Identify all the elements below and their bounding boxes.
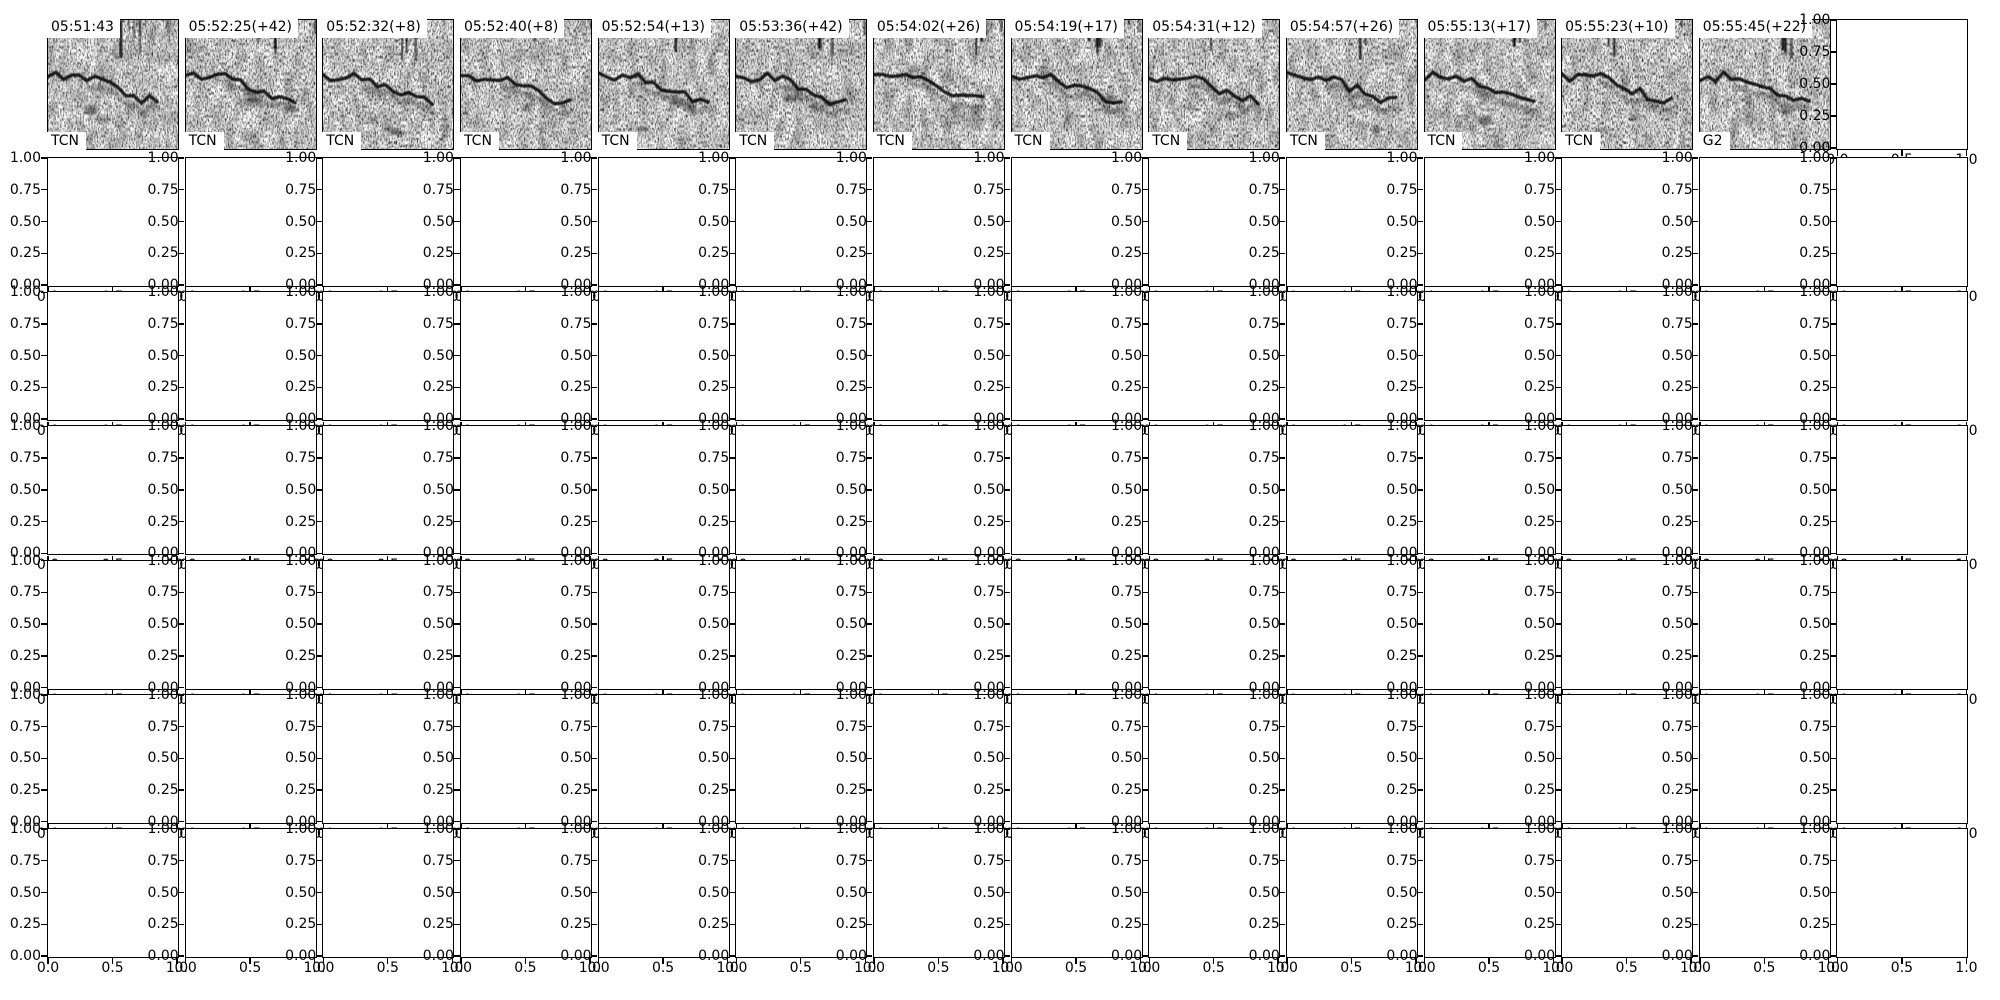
y-tick-label: 0.25 [1249,648,1280,664]
y-tick-mark [454,758,459,759]
y-tick-label: 0.50 [1524,885,1555,901]
y-tick-mark [1693,789,1698,790]
y-tick-mark [179,592,184,593]
y-tick-mark [1693,560,1698,561]
y-tick-label: 1.00 [285,284,316,300]
y-tick-label: 0.25 [1111,782,1142,798]
y-tick-label: 0.50 [1111,214,1142,230]
y-tick-mark [1280,521,1285,522]
y-tick-mark [592,592,597,593]
y-tick-label: 0.25 [1386,648,1417,664]
y-tick-mark [867,821,872,822]
y-tick-label: 1.00 [560,821,591,837]
y-tick-mark [179,253,184,254]
y-tick-mark [41,292,46,293]
y-tick-label: 0.25 [1111,916,1142,932]
y-tick-mark [1831,758,1836,759]
y-tick-mark [1831,623,1836,624]
y-tick-mark [867,418,872,419]
panel-timestamp-label: 05:54:02(+26) [873,17,986,38]
y-tick-label: 0.25 [1386,916,1417,932]
y-tick-label: 0.50 [1249,750,1280,766]
y-tick-mark [1693,623,1698,624]
y-tick-label: 1.00 [836,418,867,434]
y-tick-mark [1143,892,1148,893]
y-tick-label: 0.50 [1111,348,1142,364]
y-tick-label: 0.50 [285,616,316,632]
y-tick-mark [730,860,735,861]
y-tick-mark [1418,560,1423,561]
panel-detector-label: TCN [598,132,637,151]
y-tick-label: 0.25 [973,245,1004,261]
y-tick-label: 1.00 [147,418,178,434]
y-tick-label: 0.50 [1111,616,1142,632]
y-tick-mark [1143,828,1148,829]
y-tick-label: 0.25 [698,379,729,395]
y-tick-label: 0.50 [560,214,591,230]
y-tick-mark [179,560,184,561]
y-tick-label: 0.75 [1799,584,1830,600]
y-tick-mark [1005,221,1010,222]
y-tick-label: 0.50 [836,750,867,766]
spectrogram-panel: 05:54:19(+17) TCN [1011,19,1143,150]
y-tick-label: 1.00 [10,284,41,300]
y-tick-label: 0.25 [1662,648,1693,664]
y-tick-mark [1280,694,1285,695]
y-tick-label: 0.25 [423,245,454,261]
y-tick-mark [1280,284,1285,285]
spectrogram-noise-svg [186,20,316,149]
y-tick-label: 1.00 [836,687,867,703]
y-tick-mark [179,284,184,285]
y-tick-mark [1280,758,1285,759]
y-tick-mark [1831,457,1836,458]
y-tick-label: 0.25 [973,916,1004,932]
y-tick-mark [317,521,322,522]
x-tick-label: 0.5 [230,960,270,976]
y-tick-mark [317,253,322,254]
panel-detector-label: TCN [1011,132,1050,151]
y-tick-label: 1.00 [147,150,178,166]
y-tick-label: 1.00 [1249,687,1280,703]
y-tick-label: 0.75 [423,853,454,869]
y-tick-label: 0.25 [1524,379,1555,395]
y-tick-label: 1.00 [698,418,729,434]
y-tick-label: 0.50 [560,482,591,498]
y-tick-label: 0.75 [1799,182,1830,198]
y-tick-label: 0.25 [1249,916,1280,932]
y-tick-mark [179,655,184,656]
y-tick-mark [1143,789,1148,790]
y-tick-mark [179,323,184,324]
y-tick-label: 0.75 [1249,719,1280,735]
x-tick-label: 0.0 [303,960,343,976]
y-tick-label: 0.25 [973,782,1004,798]
y-tick-mark [1280,189,1285,190]
y-tick-label: 0.25 [973,648,1004,664]
spectrogram-image [874,20,1004,149]
y-tick-mark [1693,253,1698,254]
y-tick-mark [1280,457,1285,458]
y-tick-mark [1143,821,1148,822]
y-tick-mark [1556,221,1561,222]
y-tick-label: 0.75 [973,316,1004,332]
y-tick-mark [317,655,322,656]
y-tick-mark [592,694,597,695]
y-tick-mark [317,789,322,790]
y-tick-mark [1693,821,1698,822]
y-tick-mark [1418,828,1423,829]
empty-axes: 1.000.750.500.250.000.00.51.0 [1836,157,1968,287]
y-tick-mark [1556,655,1561,656]
y-tick-mark [179,157,184,158]
y-tick-mark [179,189,184,190]
y-tick-mark [179,892,184,893]
y-tick-mark [730,955,735,956]
y-tick-mark [41,387,46,388]
y-tick-label: 1.00 [836,821,867,837]
y-tick-mark [41,821,46,822]
y-tick-mark [1005,323,1010,324]
spectrogram-noise-svg [736,20,866,149]
y-tick-label: 0.25 [560,916,591,932]
y-tick-mark [1556,560,1561,561]
spectrogram-noise-svg [461,20,591,149]
y-tick-label: 0.75 [836,584,867,600]
y-tick-label: 0.75 [560,316,591,332]
y-tick-mark [317,892,322,893]
y-tick-label: 0.75 [423,316,454,332]
y-tick-mark [317,426,322,427]
y-tick-mark [592,387,597,388]
y-tick-label: 0.50 [973,214,1004,230]
y-tick-mark [1831,521,1836,522]
panel-detector-label: TCN [1561,132,1600,151]
y-tick-label: 0.25 [836,245,867,261]
panel-detector-label: TCN [873,132,912,151]
y-tick-label: 0.25 [1386,514,1417,530]
y-tick-label: 0.50 [1386,482,1417,498]
y-tick-mark [1418,157,1423,158]
y-tick-label: 0.75 [1386,316,1417,332]
panel-detector-label: TCN [322,132,361,151]
y-tick-label: 0.25 [423,648,454,664]
y-tick-mark [179,623,184,624]
y-tick-label: 0.25 [10,648,41,664]
y-tick-label: 0.50 [1249,885,1280,901]
y-tick-label: 0.50 [285,214,316,230]
y-tick-label: 1.00 [1662,553,1693,569]
y-tick-mark [454,821,459,822]
x-tick-label: 0.5 [1331,960,1371,976]
y-tick-mark [1143,355,1148,356]
y-tick-label: 0.75 [423,450,454,466]
y-tick-label: 0.75 [973,719,1004,735]
y-tick-mark [317,821,322,822]
y-tick-mark [1418,457,1423,458]
y-tick-mark [1005,892,1010,893]
y-tick-mark [867,221,872,222]
y-tick-label: 0.25 [1111,379,1142,395]
y-tick-mark [1831,592,1836,593]
y-tick-label: 0.50 [560,616,591,632]
y-tick-mark [317,418,322,419]
y-tick-mark [1831,284,1836,285]
y-tick-mark [317,560,322,561]
y-tick-mark [867,355,872,356]
y-tick-mark [1418,789,1423,790]
y-tick-label: 0.75 [836,719,867,735]
spectrogram-noise-svg [874,20,1004,149]
y-tick-mark [1005,924,1010,925]
y-tick-mark [1143,694,1148,695]
y-tick-mark [1005,521,1010,522]
y-tick-label: 0.75 [147,182,178,198]
y-tick-mark [867,189,872,190]
y-tick-mark [1831,789,1836,790]
y-tick-mark [1831,860,1836,861]
y-tick-mark [1280,323,1285,324]
y-tick-mark [1418,623,1423,624]
panel-timestamp-label: 05:54:31(+12) [1148,17,1261,38]
y-tick-label: 0.25 [836,379,867,395]
y-tick-label: 0.25 [836,916,867,932]
y-tick-label: 1.00 [1799,418,1830,434]
y-tick-mark [41,860,46,861]
panel-detector-label: TCN [460,132,499,151]
y-tick-mark [1418,553,1423,554]
y-tick-label: 0.50 [1799,348,1830,364]
y-tick-label: 0.75 [10,182,41,198]
y-tick-mark [1143,726,1148,727]
y-tick-mark [1280,592,1285,593]
y-tick-mark [592,457,597,458]
y-tick-mark [730,821,735,822]
y-tick-label: 0.75 [1111,316,1142,332]
y-tick-label: 1.00 [1799,553,1830,569]
y-tick-mark [1418,726,1423,727]
spectrogram-noise-svg [1425,20,1555,149]
y-tick-label: 0.50 [10,750,41,766]
y-tick-label: 0.50 [836,482,867,498]
y-tick-label: 0.25 [1249,782,1280,798]
y-tick-mark [1693,292,1698,293]
y-tick-label: 0.50 [973,616,1004,632]
y-tick-mark [454,726,459,727]
y-tick-label: 0.50 [147,482,178,498]
y-tick-label: 0.25 [1249,245,1280,261]
y-tick-mark [1693,489,1698,490]
y-tick-mark [1418,284,1423,285]
y-tick-label: 0.50 [1249,482,1280,498]
y-tick-mark [317,157,322,158]
y-tick-mark [179,457,184,458]
y-tick-mark [592,489,597,490]
y-tick-mark [1556,828,1561,829]
y-tick-mark [1556,955,1561,956]
y-tick-mark [179,221,184,222]
y-tick-mark [867,726,872,727]
x-tick-label: 0.5 [1194,960,1234,976]
y-tick-label: 0.25 [1799,514,1830,530]
y-tick-mark [317,687,322,688]
y-tick-label: 0.75 [147,853,178,869]
y-tick-label: 1.00 [1249,821,1280,837]
y-tick-mark [1693,355,1698,356]
y-tick-label: 0.25 [1662,245,1693,261]
y-tick-mark [1831,694,1836,695]
x-tick-label: 0.5 [918,960,958,976]
y-tick-label: 0.50 [285,348,316,364]
y-tick-mark [730,387,735,388]
y-tick-mark [592,157,597,158]
panel-timestamp-label: 05:54:57(+26) [1286,17,1399,38]
y-tick-mark [1418,418,1423,419]
y-tick-label: 0.75 [973,584,1004,600]
y-tick-label: 0.75 [1111,719,1142,735]
y-tick-mark [592,553,597,554]
y-tick-mark [1005,560,1010,561]
y-tick-mark [1556,553,1561,554]
y-tick-mark [1280,623,1285,624]
y-tick-mark [592,189,597,190]
x-tick-label: 0.0 [1817,960,1857,976]
y-tick-mark [1418,292,1423,293]
y-tick-label: 1.00 [1662,687,1693,703]
y-tick-mark [592,789,597,790]
y-tick-label: 1.00 [423,553,454,569]
y-tick-label: 0.25 [836,648,867,664]
panel-detector-label: TCN [185,132,224,151]
y-tick-mark [317,758,322,759]
x-tick-label: 0.5 [93,960,133,976]
y-tick-label: 0.50 [560,885,591,901]
x-tick-label: 0.5 [1607,960,1647,976]
y-tick-label: 0.25 [1386,245,1417,261]
y-tick-mark [317,694,322,695]
y-tick-mark [1556,157,1561,158]
y-tick-label: 0.25 [147,514,178,530]
y-tick-label: 1.00 [1524,150,1555,166]
y-tick-mark [1005,489,1010,490]
y-tick-mark [730,828,735,829]
y-tick-label: 0.75 [1799,853,1830,869]
y-tick-mark [41,592,46,593]
y-tick-label: 0.25 [285,245,316,261]
x-tick-label: 0.0 [854,960,894,976]
y-tick-mark [730,284,735,285]
figure: 05:51:43 TCN 05:52:25(+42) TCN 05:52:32(… [0,0,2000,1000]
y-tick-label: 0.75 [10,853,41,869]
y-tick-mark [1005,758,1010,759]
y-tick-label: 0.75 [1249,584,1280,600]
panel-detector-label: TCN [1148,132,1187,151]
y-tick-mark [1831,253,1836,254]
y-tick-label: 0.25 [1386,782,1417,798]
y-tick-label: 0.75 [1386,584,1417,600]
y-tick-label: 0.50 [1662,750,1693,766]
y-tick-label: 0.25 [560,782,591,798]
y-tick-label: 1.00 [423,284,454,300]
y-tick-label: 0.50 [1249,214,1280,230]
y-tick-label: 0.25 [1799,648,1830,664]
y-tick-mark [1831,189,1836,190]
y-tick-mark [1005,355,1010,356]
y-tick-label: 0.25 [1524,916,1555,932]
y-tick-mark [179,758,184,759]
y-tick-mark [592,821,597,822]
y-tick-label: 0.75 [1386,450,1417,466]
y-tick-label: 0.50 [1799,482,1830,498]
y-tick-label: 0.50 [147,750,178,766]
y-tick-label: 0.25 [10,782,41,798]
y-tick-label: 0.50 [10,348,41,364]
y-tick-mark [1280,789,1285,790]
y-tick-mark [1143,553,1148,554]
y-tick-mark [1418,221,1423,222]
y-tick-mark [1005,655,1010,656]
y-tick-mark [1831,560,1836,561]
y-tick-label: 0.25 [698,514,729,530]
y-tick-label: 0.75 [560,719,591,735]
y-tick-label: 0.25 [147,648,178,664]
y-tick-mark [1143,189,1148,190]
y-tick-label: 0.75 [1524,450,1555,466]
y-tick-mark [1693,592,1698,593]
y-tick-label: 0.75 [285,450,316,466]
x-tick-label: 0.0 [1542,960,1582,976]
y-tick-label: 0.75 [1662,316,1693,332]
y-tick-label: 0.25 [1662,379,1693,395]
y-tick-label: 0.50 [285,482,316,498]
y-tick-label: 0.25 [1249,379,1280,395]
y-tick-label: 0.50 [1111,885,1142,901]
panel-detector-label: TCN [735,132,774,151]
y-tick-mark [1556,387,1561,388]
y-tick-mark [41,418,46,419]
y-tick-mark [1556,521,1561,522]
y-tick-mark [867,253,872,254]
y-tick-mark [592,221,597,222]
y-tick-mark [41,694,46,695]
y-tick-label: 0.75 [1386,182,1417,198]
y-tick-label: 1.00 [560,150,591,166]
y-tick-mark [730,426,735,427]
y-tick-mark [1005,694,1010,695]
y-tick-mark [867,426,872,427]
y-tick-label: 1.00 [1662,150,1693,166]
y-tick-label: 0.75 [1524,719,1555,735]
y-tick-mark [1005,426,1010,427]
y-tick-mark [1280,860,1285,861]
y-tick-mark [1280,253,1285,254]
y-tick-label: 0.25 [1386,379,1417,395]
y-tick-label: 0.50 [1524,214,1555,230]
y-tick-label: 0.75 [1111,182,1142,198]
y-tick-label: 0.75 [698,719,729,735]
y-tick-mark [730,789,735,790]
y-tick-mark [179,687,184,688]
y-tick-label: 0.50 [423,885,454,901]
y-tick-mark [1280,655,1285,656]
y-tick-mark [1556,860,1561,861]
y-tick-mark [317,457,322,458]
y-tick-mark [592,426,597,427]
y-tick-mark [41,253,46,254]
y-tick-label: 0.50 [423,348,454,364]
y-tick-mark [1143,687,1148,688]
y-tick-mark [730,418,735,419]
